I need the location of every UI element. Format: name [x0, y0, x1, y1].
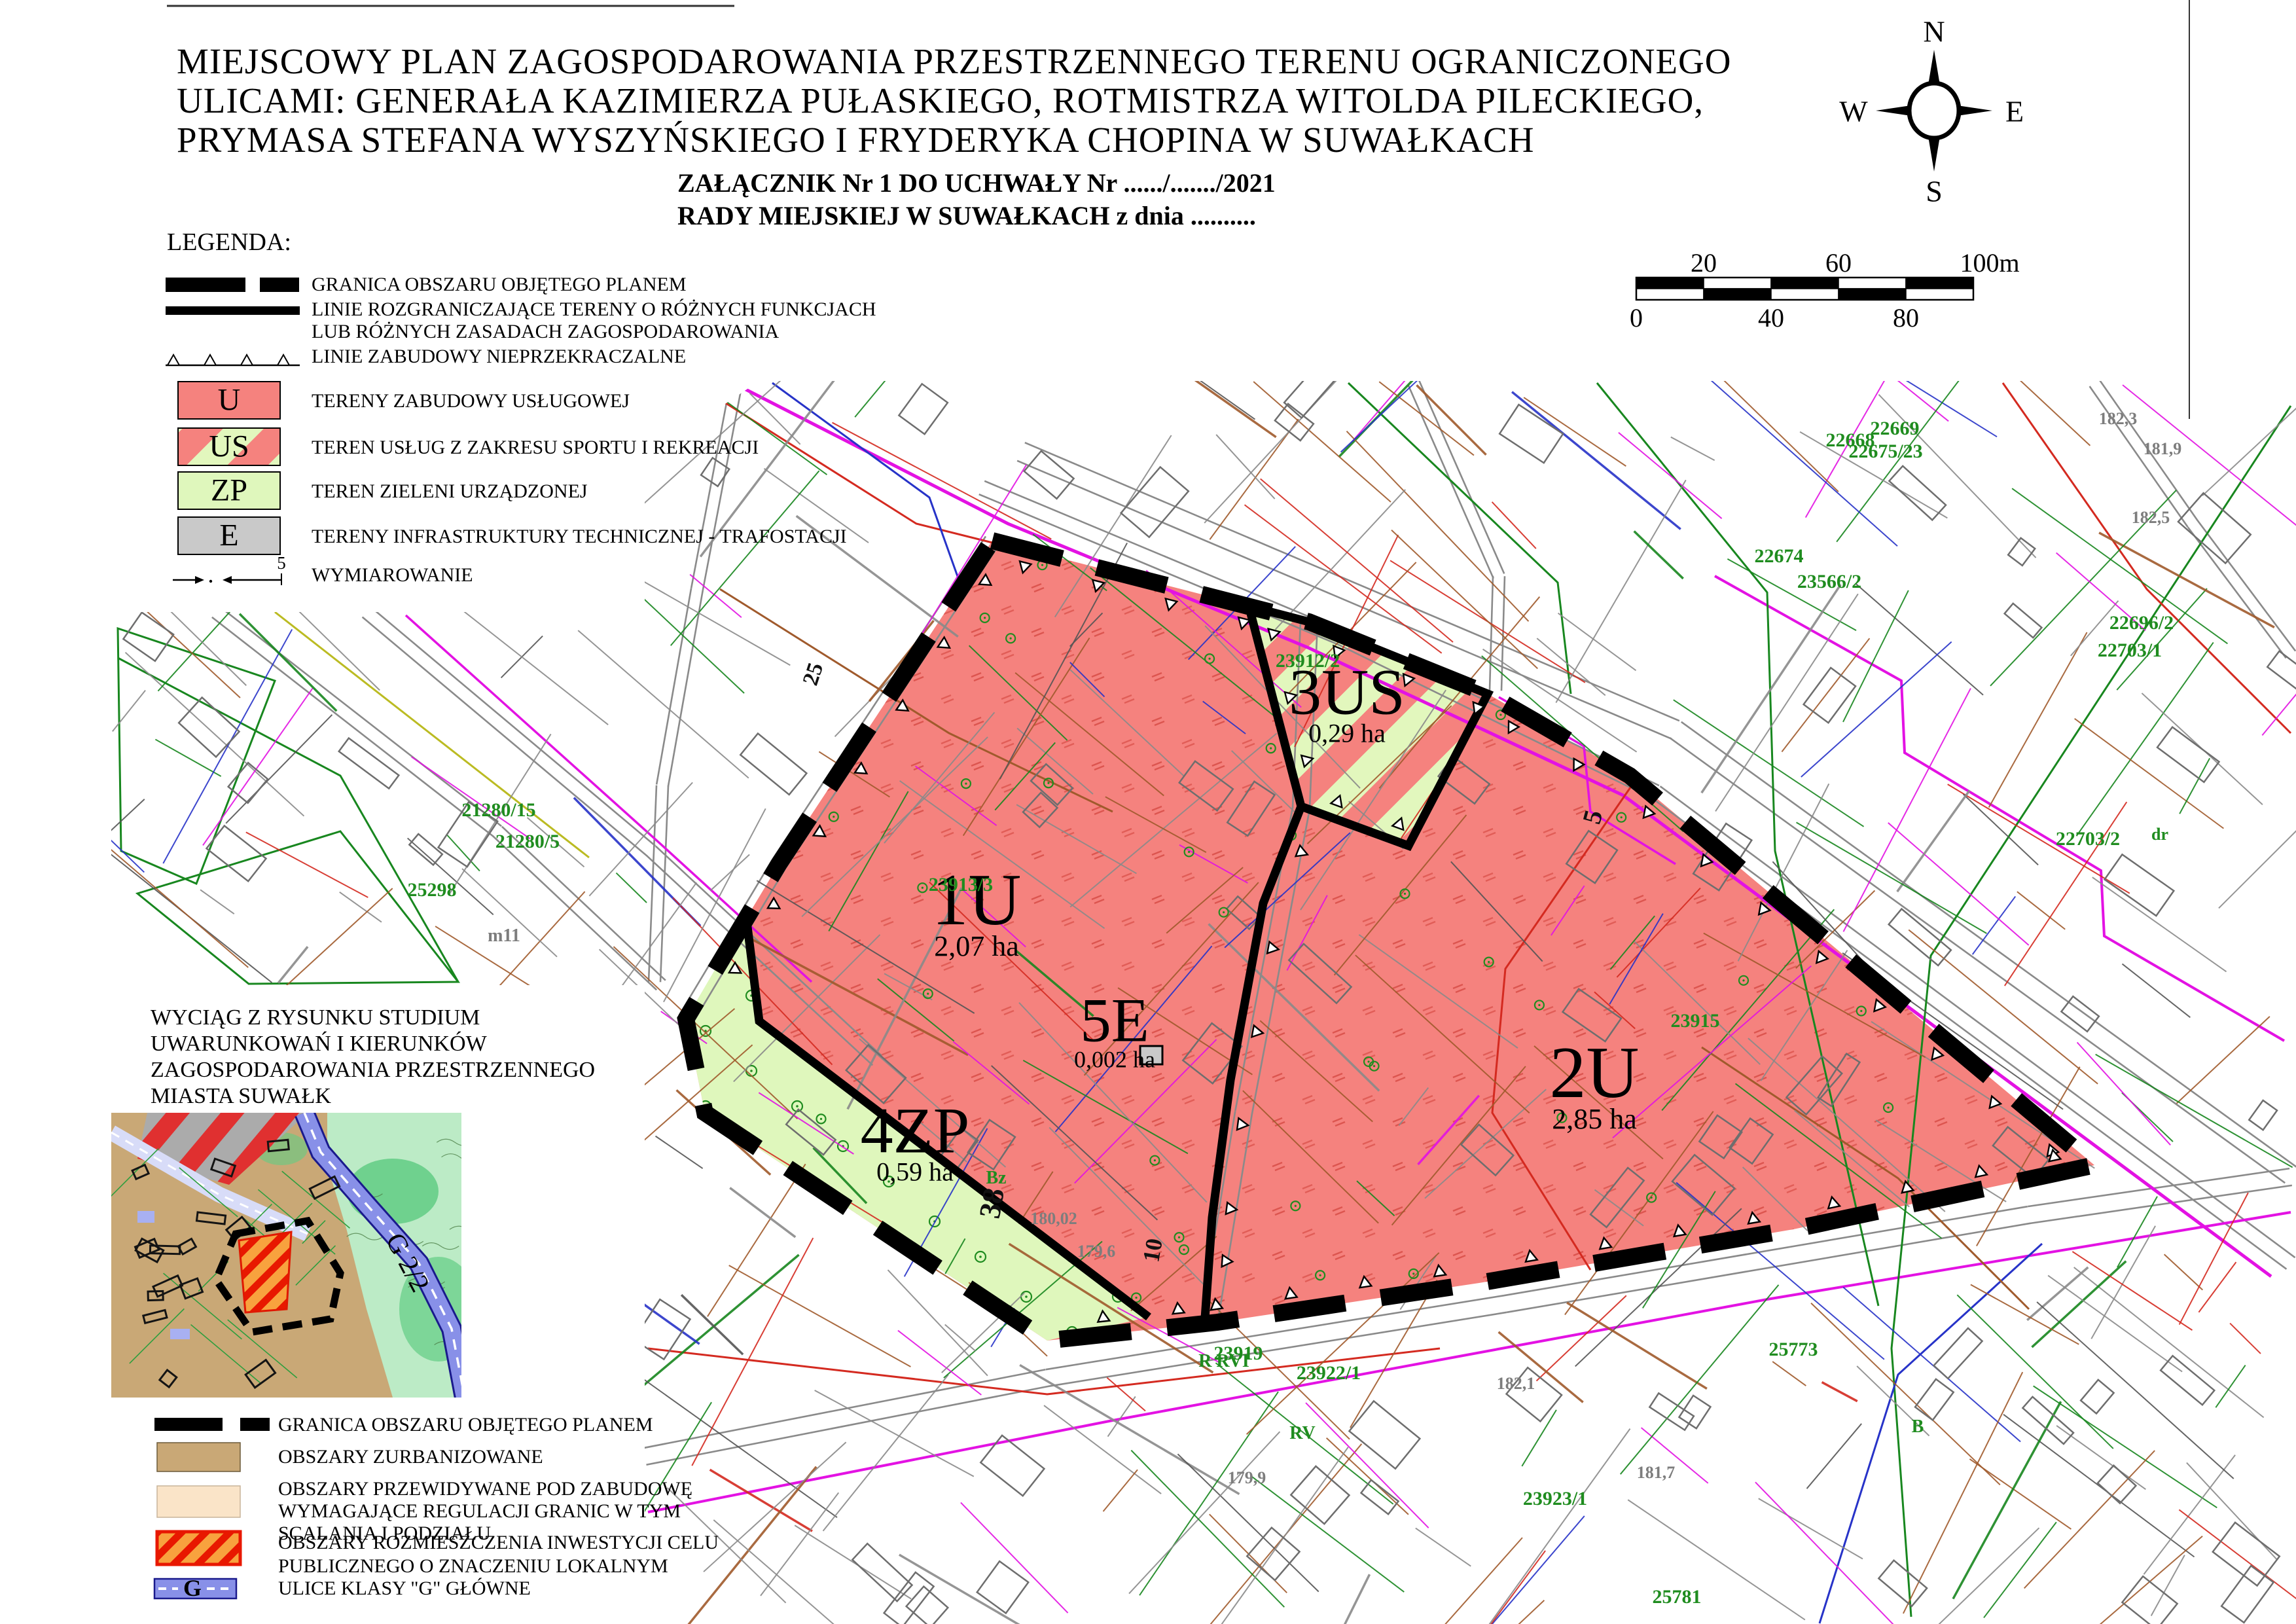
study-heading-1: WYCIĄG Z RYSUNKU STUDIUM [151, 1005, 480, 1030]
title-line-1: MIEJSCOWY PLAN ZAGOSPODAROWANIA PRZESTRZ… [177, 41, 1731, 82]
study-planned-swatch [157, 1486, 240, 1517]
plan-sheet: MIEJSCOWY PLAN ZAGOSPODAROWANIA PRZESTRZ… [0, 0, 2296, 1624]
scale-bar [1636, 278, 1973, 300]
zone-label-2u: 2U2,85 ha [1550, 1040, 1640, 1132]
map-annotation: 38 [972, 1185, 1011, 1221]
study-boundary-symbol [154, 1418, 223, 1431]
study-legend-boundary: GRANICA OBSZARU OBJĘTEGO PLANEM [278, 1414, 653, 1436]
legend-e-code: E [219, 518, 238, 554]
map-annotation: 23566/2 [1797, 571, 1861, 593]
legend-item-building-line: LINIE ZABUDOWY NIEPRZEKRACZALNE [312, 346, 686, 368]
scale-label-40: 40 [1758, 302, 1784, 333]
legend-us-code: US [209, 429, 249, 465]
legend-item-dividing: LINIE ROZGRANICZAJĄCE TERENY O RÓŻNYCH F… [312, 298, 876, 321]
study-heading-4: MIASTA SUWAŁK [151, 1084, 331, 1109]
compass-n: N [1923, 14, 1945, 49]
map-annotation: B [1912, 1416, 1924, 1437]
study-urbanized-swatch [157, 1443, 240, 1471]
map-annotation: 23922/1 [1297, 1362, 1361, 1384]
legend-u-code: U [218, 382, 241, 418]
scale-label-100m: 100m [1960, 247, 2019, 278]
title-line-3: PRYMASA STEFANA WYSZYŃSKIEGO I FRYDERYKA… [177, 119, 1534, 160]
map-annotation: 180,02 [1030, 1209, 1077, 1229]
legend-e-label: TERENY INFRASTRUKTURY TECHNICZNEJ - TRAF… [312, 526, 847, 548]
map-annotation: 22675/23 [1848, 441, 1922, 463]
map-annotation: RV [1289, 1423, 1315, 1444]
legend-u-label: TERENY ZABUDOWY USŁUGOWEJ [312, 390, 630, 412]
study-heading-3: ZAGOSPODAROWANIA PRZESTRZENNEGO [151, 1058, 595, 1083]
map-annotation: 22674 [1755, 545, 1804, 568]
legend-dimension-label: WYMIAROWANIE [312, 564, 473, 586]
legend-heading: LEGENDA: [167, 228, 291, 257]
annex-line-2: RADY MIEJSKIEJ W SUWAŁKACH z dnia ......… [677, 200, 1256, 231]
legend-dimension-symbol [173, 573, 281, 585]
legend-item-dividing-2: LUB RÓŻNYCH ZASADACH ZAGOSPODAROWANIA [312, 321, 779, 343]
compass-e: E [2005, 94, 2024, 129]
legend-dimension-value: 5 [277, 553, 286, 573]
legend-zp-code: ZP [211, 473, 247, 509]
scale-label-80: 80 [1893, 302, 1919, 333]
study-legend-planned-2: WYMAGAJĄCE REGULACJI GRANIC W TYM [278, 1500, 681, 1523]
map-annotation: 23923/1 [1523, 1488, 1587, 1510]
scale-label-60: 60 [1825, 247, 1852, 278]
compass-rose [1876, 50, 1992, 171]
annex-line-1: ZAŁĄCZNIK Nr 1 DO UCHWAŁY Nr ....../....… [677, 168, 1276, 198]
legend-us-label: TEREN USŁUG Z ZAKRESU SPORTU I REKREACJI [312, 437, 759, 459]
study-legend-road: ULICE KLASY "G" GŁÓWNE [278, 1578, 531, 1600]
compass-w: W [1839, 94, 1867, 129]
map-annotation: 179,9 [1228, 1468, 1266, 1488]
study-legend-investment-2: PUBLICZNEGO O ZNACZENIU LOKALNYM [278, 1555, 668, 1578]
study-legend-symbols [154, 1418, 270, 1598]
map-annotation: 182,3 [2099, 409, 2138, 429]
map-annotation: 182,1 [1497, 1374, 1535, 1394]
study-investment-swatch [157, 1532, 240, 1564]
map-annotation: 25298 [408, 879, 457, 901]
legend-zp-label: TEREN ZIELENI URZĄDZONEJ [312, 480, 588, 503]
legend-building-line-symbol [166, 355, 300, 365]
zone-label-3us: 3US0,29 ha [1289, 662, 1405, 745]
map-annotation: dr [2151, 825, 2168, 844]
map-annotation: 21280/5 [495, 831, 560, 853]
title-line-2: ULICAMI: GENERAŁA KAZIMIERZA PUŁASKIEGO,… [177, 80, 1704, 121]
study-heading-2: UWARUNKOWAŃ I KIERUNKÓW [151, 1032, 487, 1056]
scale-label-0: 0 [1630, 302, 1643, 333]
map-annotation: 22703/2 [2056, 828, 2120, 850]
map-annotation: 181,9 [2144, 439, 2182, 459]
study-legend-investment-1: OBSZARY ROZMIESZCZENIA INWESTYCJI CELU [278, 1532, 719, 1554]
map-annotation: 22703/1 [2098, 640, 2162, 662]
map-annotation: 181,7 [1637, 1463, 1676, 1483]
study-road-class-letter: G [183, 1574, 202, 1602]
map-annotation: 22669 [1871, 418, 1920, 440]
scale-label-20: 20 [1691, 247, 1717, 278]
study-legend-planned-1: OBSZARY PRZEWIDYWANE POD ZABUDOWĘ [278, 1478, 692, 1500]
map-annotation: R RVI [1198, 1351, 1249, 1372]
map-annotation: 23915 [1671, 1010, 1720, 1032]
legend-dividing-line-symbol [166, 306, 300, 315]
map-annotation: m11 [488, 926, 520, 947]
compass-circle [1909, 83, 1959, 138]
map-annotation: 23913/3 [929, 874, 993, 896]
zone-label-4zp: 4ZP0,59 ha [861, 1101, 970, 1183]
study-legend-urbanized: OBSZARY ZURBANIZOWANE [278, 1446, 543, 1468]
map-annotation: 25773 [1769, 1339, 1818, 1361]
map-annotation: 182,5 [2132, 508, 2170, 528]
map-annotation: 25781 [1653, 1586, 1702, 1608]
map-annotation: 179,6 [1077, 1242, 1116, 1261]
zone-label-5e: 5E0,002 ha [1074, 993, 1155, 1070]
legend-item-boundary: GRANICA OBSZARU OBJĘTEGO PLANEM [312, 274, 687, 296]
study-inset-map [111, 1113, 486, 1398]
map-annotation: Bz [986, 1168, 1006, 1189]
map-annotation: 22696/2 [2109, 612, 2174, 634]
map-annotation: 23912/2 [1276, 650, 1340, 672]
map-annotation: 10 [1137, 1236, 1168, 1265]
legend-boundary-symbol [166, 278, 245, 292]
compass-s: S [1926, 174, 1943, 209]
map-annotation: 21280/15 [461, 799, 535, 821]
